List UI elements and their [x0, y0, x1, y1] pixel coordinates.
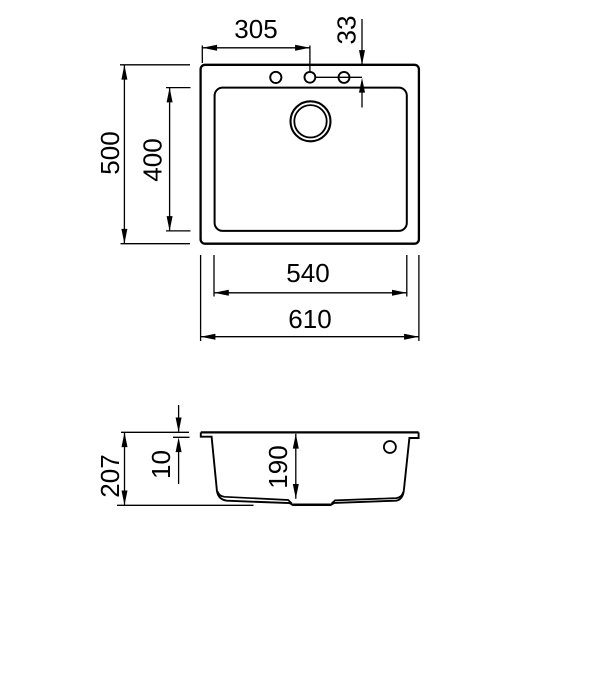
svg-text:33: 33	[332, 16, 362, 45]
svg-text:207: 207	[95, 454, 125, 497]
svg-text:500: 500	[95, 131, 125, 174]
svg-text:610: 610	[288, 304, 331, 334]
svg-text:540: 540	[286, 258, 329, 288]
svg-text:305: 305	[234, 14, 277, 44]
svg-text:190: 190	[263, 445, 293, 488]
svg-text:400: 400	[138, 138, 168, 181]
svg-text:10: 10	[146, 450, 176, 479]
